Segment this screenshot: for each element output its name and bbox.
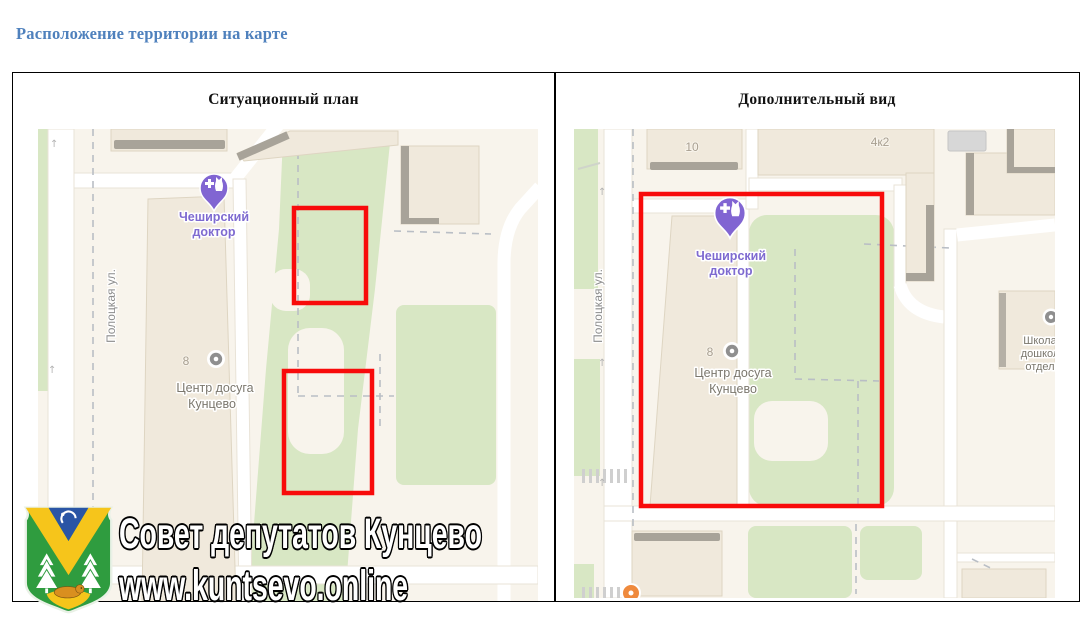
metro-exit-poi-icon [622,584,640,598]
school-poi-label-line3: отдел [1025,361,1054,373]
school-poi-label-line1: Школа [1023,335,1055,347]
panel-situational-plan: Ситуационный план [13,73,554,601]
vet-poi-label-line2: доктор [709,264,752,278]
maps-container: Ситуационный план [12,72,1080,602]
leisure-poi-label-line2: Кунцево [709,382,757,396]
situational-plan-map-image: ↑ ↑ Полоцкая ул. 8 Чеширский доктор Цент… [38,129,538,601]
svg-text:↑: ↑ [50,139,58,150]
svg-text:↑: ↑ [598,358,606,369]
svg-text:↑: ↑ [598,187,606,198]
page-title: Расположение территории на карте [16,24,288,44]
panel-additional-view: Дополнительный вид [555,73,1079,601]
panel-title: Ситуационный план [13,73,554,109]
leisure-poi-label-line2: Кунцево [188,397,236,411]
vet-poi-label-line2: доктор [192,225,235,239]
house-number: 8 [707,345,714,359]
house-number: 8 [183,354,190,368]
street-label: Полоцкая ул. [591,269,605,343]
vet-poi-label-line1: Чеширский [696,249,766,263]
building-number-10: 10 [685,140,699,154]
svg-text:↑: ↑ [598,478,606,489]
panel-title: Дополнительный вид [555,73,1079,109]
leisure-poi-label-line1: Центр досуга [694,366,771,380]
school-poi-label-line2: дошкол [1021,348,1055,360]
additional-view-map-image: ↑ ↑ ↑ [574,129,1055,598]
vet-poi-label-line1: Чеширский [179,210,249,224]
svg-text:↑: ↑ [48,365,56,376]
leisure-poi-label-line1: Центр досуга [176,381,253,395]
leisure-poi-icon [207,350,225,368]
building-number-4k2: 4к2 [871,135,890,149]
street-label: Полоцкая ул. [104,269,118,343]
leisure-poi-icon [723,342,741,360]
